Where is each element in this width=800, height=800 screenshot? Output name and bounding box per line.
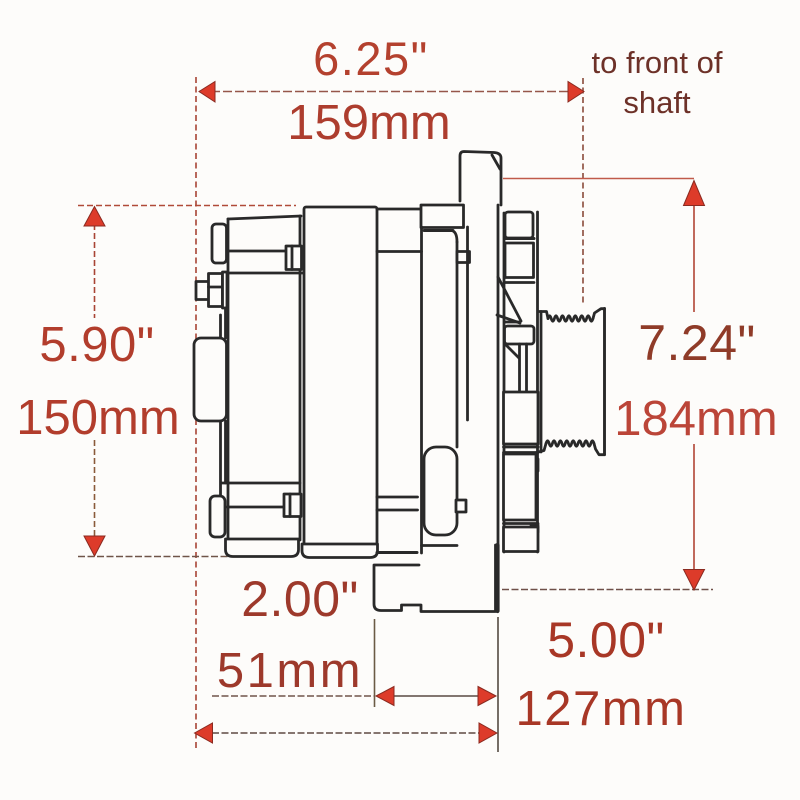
- svg-text:159mm: 159mm: [287, 96, 450, 150]
- svg-text:7.24": 7.24": [638, 315, 756, 371]
- svg-text:184mm: 184mm: [614, 392, 777, 446]
- svg-text:127mm: 127mm: [516, 682, 687, 736]
- svg-text:5.90": 5.90": [39, 318, 154, 372]
- svg-text:5.00": 5.00": [547, 612, 665, 668]
- svg-text:2.00": 2.00": [241, 571, 359, 627]
- svg-text:6.25": 6.25": [313, 32, 429, 85]
- svg-text:150mm: 150mm: [16, 391, 179, 445]
- svg-text:51mm: 51mm: [217, 644, 363, 698]
- svg-text:shaft: shaft: [623, 85, 691, 120]
- svg-text:to front of: to front of: [592, 45, 723, 80]
